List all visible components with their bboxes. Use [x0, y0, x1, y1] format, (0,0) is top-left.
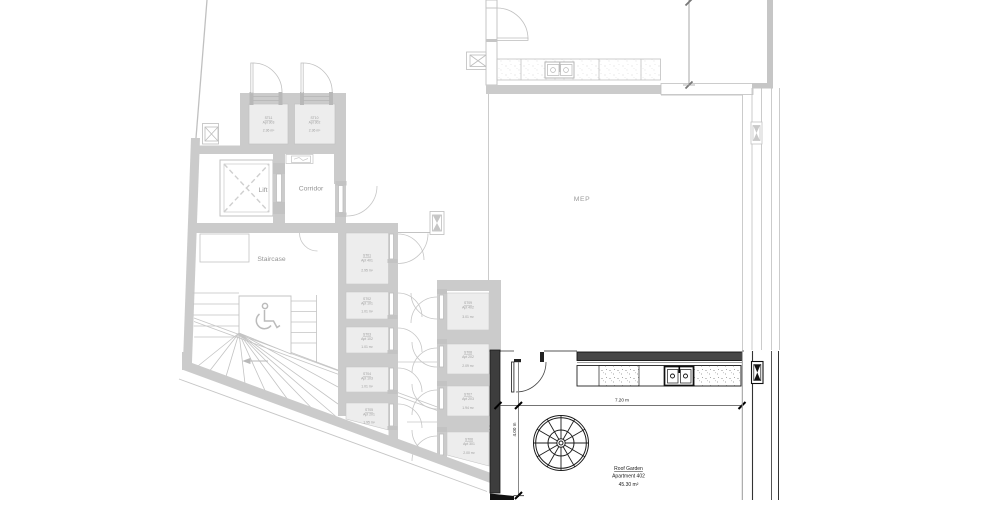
svg-text:Staircase: Staircase — [257, 256, 286, 263]
svg-text:ST05: ST05 — [365, 408, 373, 412]
svg-text:Apt 402: Apt 402 — [462, 306, 474, 310]
svg-text:2.09 m²: 2.09 m² — [462, 364, 474, 368]
svg-text:Apt 401: Apt 401 — [361, 259, 373, 263]
svg-text:1.01 m²: 1.01 m² — [361, 345, 373, 349]
svg-text:2.36 m²: 2.36 m² — [263, 129, 275, 133]
svg-text:ST07: ST07 — [464, 393, 472, 397]
svg-text:MEP: MEP — [574, 196, 591, 203]
svg-text:ST01: ST01 — [363, 254, 371, 258]
svg-text:2.95 m²: 2.95 m² — [361, 269, 373, 273]
svg-text:4.00 m: 4.00 m — [512, 422, 517, 436]
svg-text:1.94 m²: 1.94 m² — [462, 406, 474, 410]
svg-text:ST10: ST10 — [310, 116, 318, 120]
svg-text:Apt 301: Apt 301 — [463, 442, 475, 446]
svg-text:1.95 m²: 1.95 m² — [363, 421, 375, 425]
svg-text:Apartment 402: Apartment 402 — [612, 474, 645, 480]
svg-text:1.01 m²: 1.01 m² — [361, 310, 373, 314]
svg-text:Corridor: Corridor — [299, 186, 324, 193]
svg-text:Apt 202: Apt 202 — [462, 355, 474, 359]
svg-text:2.36 m²: 2.36 m² — [309, 129, 321, 133]
svg-text:1.01 m²: 1.01 m² — [361, 385, 373, 389]
svg-text:Lift: Lift — [258, 187, 267, 194]
svg-text:Apt 201: Apt 201 — [363, 413, 375, 417]
svg-text:2.00 m²: 2.00 m² — [463, 451, 475, 455]
svg-text:45.30 m²: 45.30 m² — [619, 482, 639, 488]
svg-text:Apt 102: Apt 102 — [361, 337, 373, 341]
svg-text:ST02: ST02 — [363, 297, 371, 301]
svg-text:Apt 302: Apt 302 — [309, 121, 321, 125]
svg-text:Apt 103: Apt 103 — [361, 377, 373, 381]
svg-text:3.01 m²: 3.01 m² — [462, 315, 474, 319]
svg-text:ST04: ST04 — [363, 372, 371, 376]
svg-text:ST09: ST09 — [464, 301, 472, 305]
svg-text:ST08: ST08 — [464, 351, 472, 355]
svg-text:Apt 303: Apt 303 — [263, 121, 275, 125]
svg-text:ST03: ST03 — [363, 333, 371, 337]
svg-text:ST06: ST06 — [465, 438, 473, 442]
svg-text:Roof Garden: Roof Garden — [614, 466, 643, 472]
svg-text:Apt 203: Apt 203 — [462, 397, 474, 401]
svg-text:7.20 m: 7.20 m — [615, 398, 629, 403]
svg-text:ST11: ST11 — [265, 116, 273, 120]
svg-text:Apt 101: Apt 101 — [361, 302, 373, 306]
